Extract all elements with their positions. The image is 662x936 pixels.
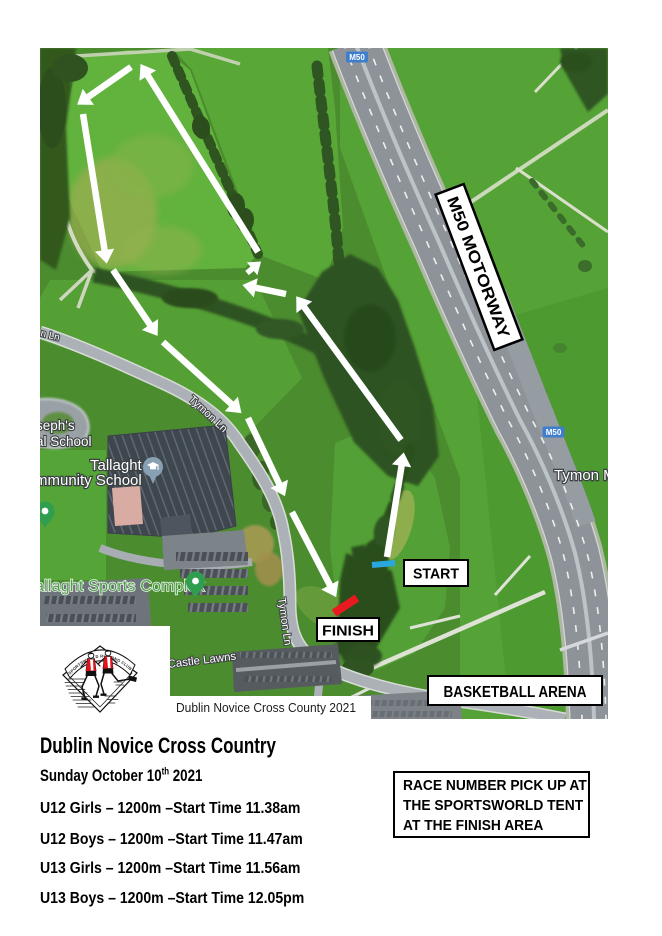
svg-text:allaght Sports Complex: allaght Sports Complex — [40, 578, 205, 595]
svg-text:mmunity School: mmunity School — [40, 472, 142, 489]
svg-text:START: START — [413, 566, 459, 583]
svg-text:BASKETBALL ARENA: BASKETBALL ARENA — [444, 684, 587, 701]
svg-text:al School: al School — [40, 434, 92, 449]
svg-text:FINISH: FINISH — [322, 623, 374, 640]
svg-text:M50: M50 — [546, 428, 562, 437]
svg-text:Dublin Novice Cross County 202: Dublin Novice Cross County 2021 — [176, 700, 356, 715]
svg-text:M50: M50 — [349, 53, 365, 62]
svg-text:Tymon M: Tymon M — [554, 467, 608, 484]
svg-text:seph's: seph's — [40, 418, 75, 433]
